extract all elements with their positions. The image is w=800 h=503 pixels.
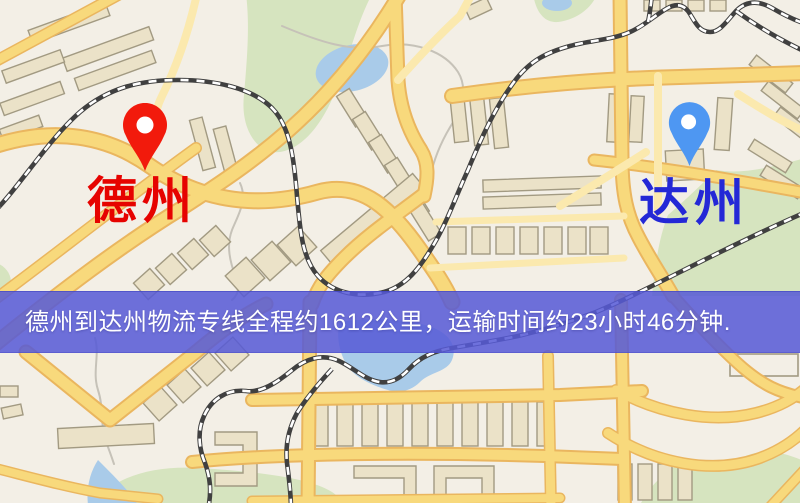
map-canvas	[0, 0, 800, 503]
route-info-banner: 德州到达州物流专线全程约1612公里，运输时间约23小时46分钟.	[0, 291, 800, 353]
destination-pin-body	[669, 102, 710, 166]
origin-city-label: 德州	[72, 176, 212, 226]
route-info-text: 德州到达州物流专线全程约1612公里，运输时间约23小时46分钟.	[25, 309, 731, 336]
destination-city-label: 达州	[624, 178, 764, 228]
map-screenshot: 德州 达州 德州到达州物流专线全程约1612公里，运输时间约23小时46分钟.	[0, 0, 800, 503]
origin-pin-body	[123, 103, 167, 171]
destination-pin-hole	[681, 114, 696, 129]
destination-pin-icon[interactable]	[667, 102, 712, 168]
origin-pin-icon[interactable]	[121, 103, 169, 173]
origin-pin-hole	[137, 117, 154, 134]
